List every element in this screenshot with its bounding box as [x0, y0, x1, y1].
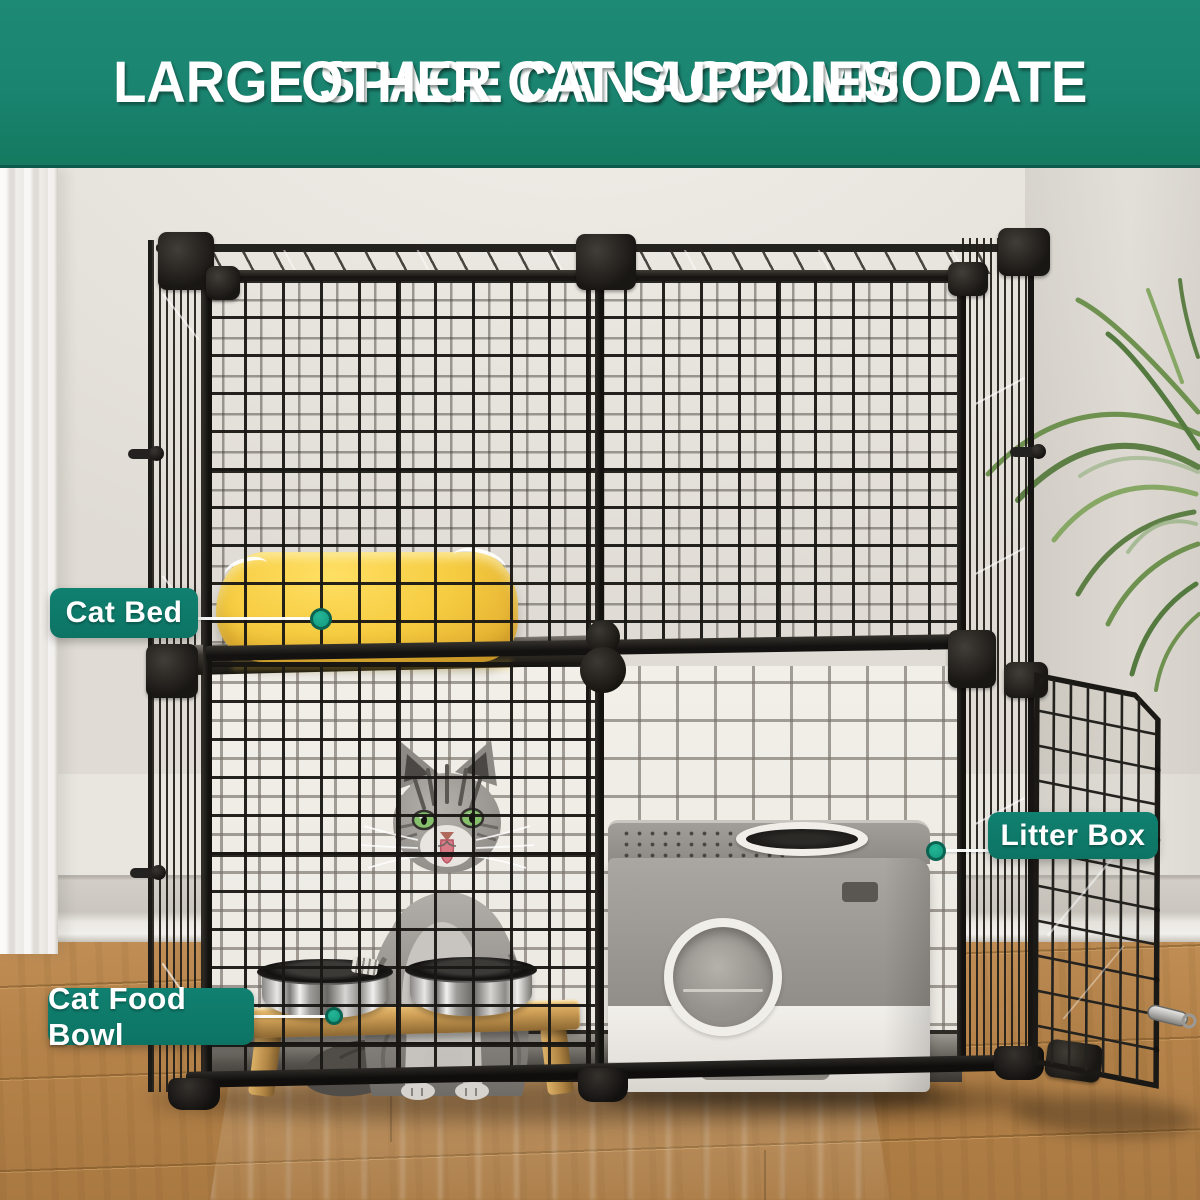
- cage-connector: [146, 644, 198, 698]
- cage-foot: [578, 1068, 628, 1102]
- callout-dot-litter: [926, 841, 946, 861]
- callout-dot-bowl: [325, 1007, 343, 1025]
- callout-line-bowl: [254, 1015, 328, 1018]
- cage-front-grid-upper: [206, 278, 963, 650]
- callout-line-bed: [195, 617, 313, 620]
- cage-ball-connector: [580, 647, 626, 693]
- headline-line-2: OTHER CAT SUPPLIES: [301, 51, 900, 115]
- litter-box-top-entry: [736, 822, 868, 856]
- panel-clip: [128, 449, 156, 459]
- label-cat-bed: Cat Bed: [50, 588, 198, 638]
- cage-connector: [948, 262, 988, 296]
- litter-box-top-hole: [746, 829, 858, 849]
- litter-box-entrance: [664, 918, 782, 1036]
- cage-connector: [206, 266, 240, 300]
- cage-connector: [948, 630, 996, 688]
- label-cat-food-bowl: Cat Food Bowl: [48, 988, 254, 1045]
- label-litter-box: Litter Box: [988, 812, 1158, 859]
- headline-banner: LARGE SPACE CAN ACCOMMODATE OTHER CAT SU…: [0, 0, 1200, 168]
- cage-foot: [168, 1078, 220, 1110]
- callout-dot-bed: [310, 608, 332, 630]
- cage-door-open: [1000, 640, 1200, 1160]
- panel-clip: [130, 868, 158, 878]
- litter-box-logo: [842, 882, 878, 902]
- callout-line-litter: [942, 849, 992, 852]
- cage-connector: [576, 234, 636, 290]
- curtain: [0, 168, 58, 954]
- cage-connector: [998, 228, 1050, 276]
- product-image: LARGE SPACE CAN ACCOMMODATE OTHER CAT SU…: [0, 0, 1200, 1200]
- panel-clip: [1010, 447, 1038, 457]
- cage-post-left: [203, 274, 212, 1086]
- litter-box-step: [683, 989, 763, 992]
- cage-front-grid-lower: [206, 662, 602, 1082]
